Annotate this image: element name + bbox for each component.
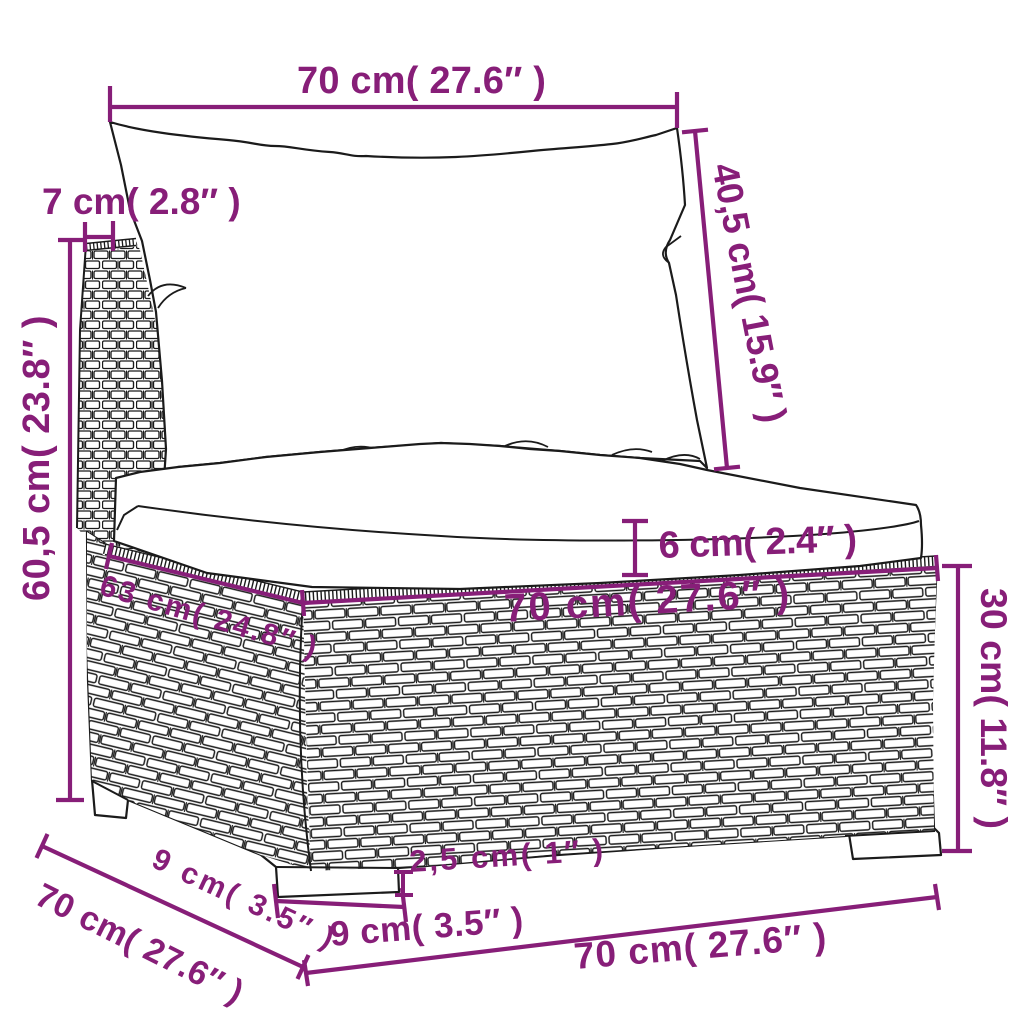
svg-text:60,5 cm( 23.8″ ): 60,5 cm( 23.8″ ) — [16, 315, 58, 601]
svg-text:6 cm( 2.4″ ): 6 cm( 2.4″ ) — [658, 518, 857, 567]
svg-text:30 cm( 11.8″ ): 30 cm( 11.8″ ) — [973, 588, 1015, 829]
svg-text:70 cm( 27.6″ ): 70 cm( 27.6″ ) — [297, 60, 546, 102]
svg-text:7 cm( 2.8″ ): 7 cm( 2.8″ ) — [42, 181, 241, 222]
